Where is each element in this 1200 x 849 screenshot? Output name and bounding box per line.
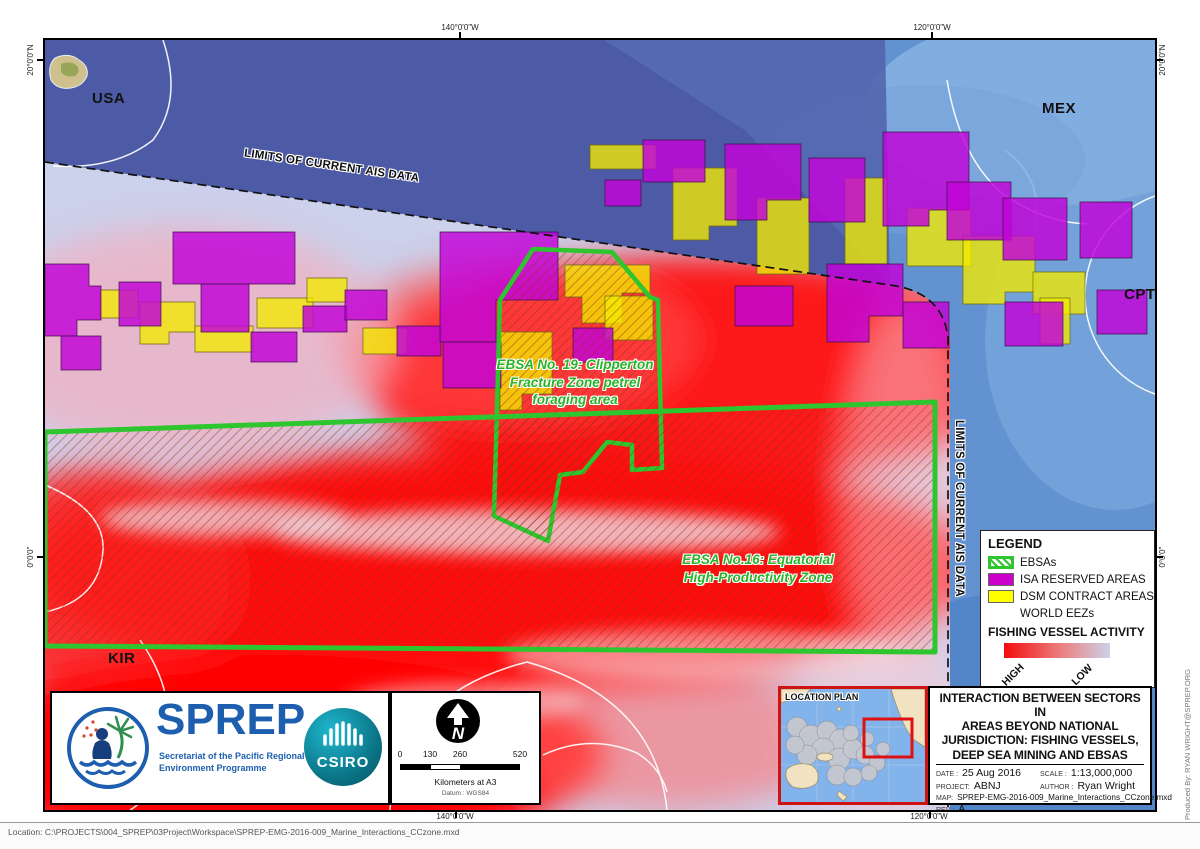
produced-by-credit: Produced By: RYAN WRIGHT@SPREP.ORG [1183,575,1192,820]
lat-label-left-20n: 20°0'0"N [26,38,36,82]
legend-item-label: EBSAs [1020,557,1056,569]
date-label: DATE : [936,771,958,778]
csiro-starburst-icon [304,714,382,754]
map-sheet: 140°0'0"W 120°0'0"W 140°0'0"W 120°0'0"W … [0,0,1200,849]
ebsa-16-polygon [45,402,935,652]
tick [1156,556,1163,558]
csiro-logo-icon: CSIRO [304,708,382,786]
status-bar: Location: C:\PROJECTS\004_SPREP\03Projec… [0,822,1200,849]
location-plan-panel: LOCATION PLAN [778,686,928,805]
ebsa-19-line1: EBSA No. 19: Clipperton [455,356,695,374]
country-label-usa: USA [92,90,125,107]
ebsa-16-label: EBSA No.16: Equatorial High-Productivity… [628,551,888,586]
scale-tick-0: 0 [398,749,403,759]
tick [1156,59,1163,61]
legend-item-label: WORLD EEZs [1020,608,1094,620]
legend-item-label: DSM CONTRACT AREAS [1020,591,1154,603]
scale-panel: N 0 130 260 520 Kilometers at A3 Datum :… [390,691,541,805]
title-block-row-2: PROJECT: ABNJ AUTHOR : Ryan Wright [936,780,1144,792]
tick [929,811,931,818]
logos-panel: SPREP Secretariat of the Pacific Regiona… [50,691,390,805]
legend-title: LEGEND [988,536,1147,551]
project-label: PROJECT: [936,784,970,791]
sprep-wordmark: SPREP [156,695,305,745]
author-value: Ryan Wright [1077,780,1135,792]
tick [459,32,461,39]
activity-gradient-bar [1004,643,1110,658]
tick [931,32,933,39]
isa-swatch-icon [988,573,1014,586]
country-label-kir: KIR [108,650,135,667]
date-value: 25 Aug 2016 [962,767,1021,779]
north-arrow-icon: N [435,698,481,744]
location-plan-map [781,689,925,802]
scale-datum: Datum : WGS84 [392,790,539,797]
scale-label: SCALE : [1040,771,1067,778]
location-plan-title: LOCATION PLAN [785,692,858,702]
country-label-mex: MEX [1042,100,1076,117]
csiro-wordmark: CSIRO [304,754,382,771]
author-label: AUTHOR : [1040,784,1073,791]
legend-item-dsm: DSM CONTRACT AREAS [988,588,1147,605]
scale-tick-130: 130 [423,749,437,759]
lat-label-left-0: 0°0'0" [26,535,36,579]
legend-item-eez: WORLD EEZs [988,605,1147,622]
high-label: HIGH [1000,661,1027,688]
dsm-swatch-icon [988,590,1014,603]
tick [37,556,44,558]
title-block-row-3: MAP: SPREP-EMG-2016-009_Marine_Interacti… [936,793,1144,802]
lon-label-top-120w: 120°0'0"W [887,23,977,32]
scale-tick-520: 520 [513,749,527,759]
ais-limit-label-right: LIMITS OF CURRENT AIS DATA [953,420,965,630]
title-block-row-1: DATE : 25 Aug 2016 SCALE : 1:13,000,000 [936,767,1144,779]
ebsa-16-line2: High-Productivity Zone [628,569,888,587]
map-title-line4: DEEP SEA MINING AND EBSAS [936,748,1144,762]
ebsa-16-line1: EBSA No.16: Equatorial [628,551,888,569]
fishing-activity-title: FISHING VESSEL ACTIVITY [988,625,1147,639]
file-location-text: Location: C:\PROJECTS\004_SPREP\03Projec… [8,827,460,837]
map-title-line1: INTERACTION BETWEEN SECTORS IN [936,691,1144,719]
map-title-line3: JURISDICTION: FISHING VESSELS, [936,733,1144,747]
sprep-logo-icon [66,706,150,790]
legend-panel: LEGEND EBSAs ISA RESERVED AREAS DSM CONT… [980,530,1155,688]
scale-tick-260: 260 [453,749,467,759]
tick [37,59,44,61]
svg-text:N: N [452,724,465,743]
title-block: INTERACTION BETWEEN SECTORS IN AREAS BEY… [928,686,1152,805]
scale-unit: Kilometers at A3 [392,777,539,787]
sprep-subtitle-2: Environment Programme [159,763,267,773]
low-label: LOW [1069,662,1095,688]
country-label-cpt: CPT [1124,286,1156,303]
sprep-subtitle-1: Secretariat of the Pacific Regional [159,751,305,761]
map-title: INTERACTION BETWEEN SECTORS IN AREAS BEY… [936,691,1144,765]
ebsa-19-line3: foraging area [455,391,695,409]
project-value: ABNJ [974,780,1001,792]
tick [455,811,457,818]
scale-value: 1:13,000,000 [1071,767,1132,779]
ebsa-19-line2: Fracture Zone petrel [455,374,695,392]
legend-item-label: ISA RESERVED AREAS [1020,574,1146,586]
ebsa-swatch-icon [988,556,1014,569]
map-file-label: MAP: [936,795,953,802]
legend-item-ebsas: EBSAs [988,554,1147,571]
lon-label-top-140w: 140°0'0"W [415,23,505,32]
legend-item-isa: ISA RESERVED AREAS [988,571,1147,588]
ebsa-19-label: EBSA No. 19: Clipperton Fracture Zone pe… [455,356,695,409]
map-file-value: SPREP-EMG-2016-009_Marine_Interactions_C… [957,793,1172,802]
scale-bar [400,764,520,770]
eez-swatch-icon [988,607,1014,620]
map-title-line2: AREAS BEYOND NATIONAL [936,719,1144,733]
